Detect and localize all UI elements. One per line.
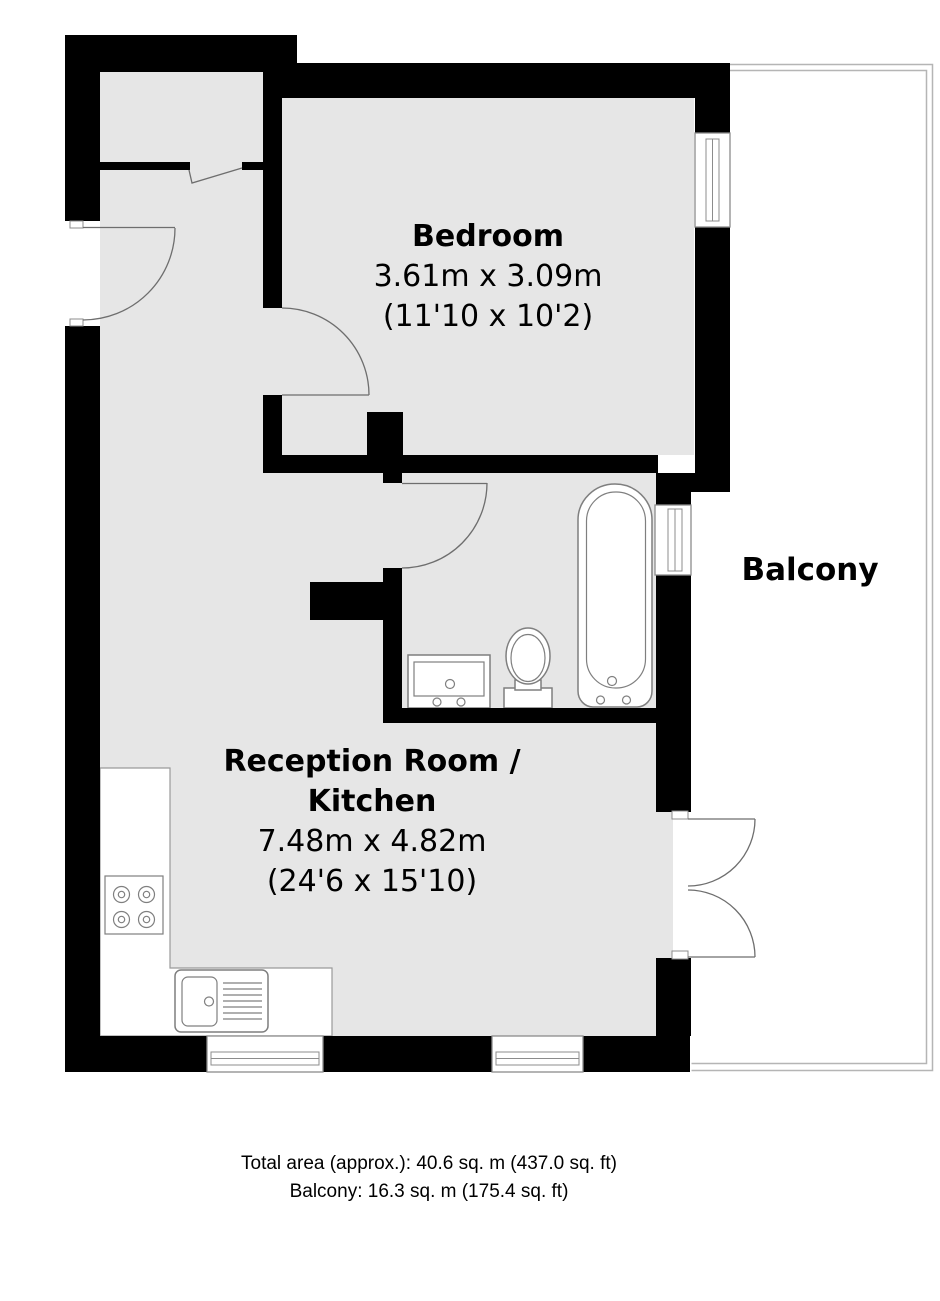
kitchen-sink <box>175 970 268 1032</box>
reception-dims-metric: 7.48m x 4.82m <box>122 822 622 862</box>
reception-name-line1: Reception Room / <box>122 742 622 782</box>
bathroom-sink <box>408 655 490 708</box>
bedroom-dims-metric: 3.61m x 3.09m <box>238 257 738 297</box>
kitchen-window-left <box>207 1036 323 1072</box>
bedroom-window <box>695 133 730 227</box>
bedroom-name: Bedroom <box>238 217 738 257</box>
balcony-area-text: Balcony: 16.3 sq. m (175.4 sq. ft) <box>129 1178 729 1206</box>
reception-label: Reception Room / Kitchen 7.48m x 4.82m (… <box>122 742 622 902</box>
balcony-label: Balcony <box>710 550 910 590</box>
balcony-door-threshold <box>656 812 673 958</box>
area-summary: Total area (approx.): 40.6 sq. m (437.0 … <box>129 1150 729 1206</box>
total-area-text: Total area (approx.): 40.6 sq. m (437.0 … <box>129 1150 729 1178</box>
bathtub <box>578 484 652 707</box>
bedroom-dims-imperial: (11'10 x 10'2) <box>238 297 738 337</box>
bedroom-label: Bedroom 3.61m x 3.09m (11'10 x 10'2) <box>238 217 738 337</box>
floorplan-canvas <box>0 0 940 1301</box>
floorplan: Bedroom 3.61m x 3.09m (11'10 x 10'2) Rec… <box>0 0 940 1301</box>
balcony-name: Balcony <box>710 550 910 590</box>
bathroom-window <box>655 505 691 575</box>
toilet <box>504 628 552 708</box>
reception-name-line2: Kitchen <box>122 782 622 822</box>
kitchen-window-right <box>492 1036 583 1072</box>
reception-dims-imperial: (24'6 x 15'10) <box>122 862 622 902</box>
